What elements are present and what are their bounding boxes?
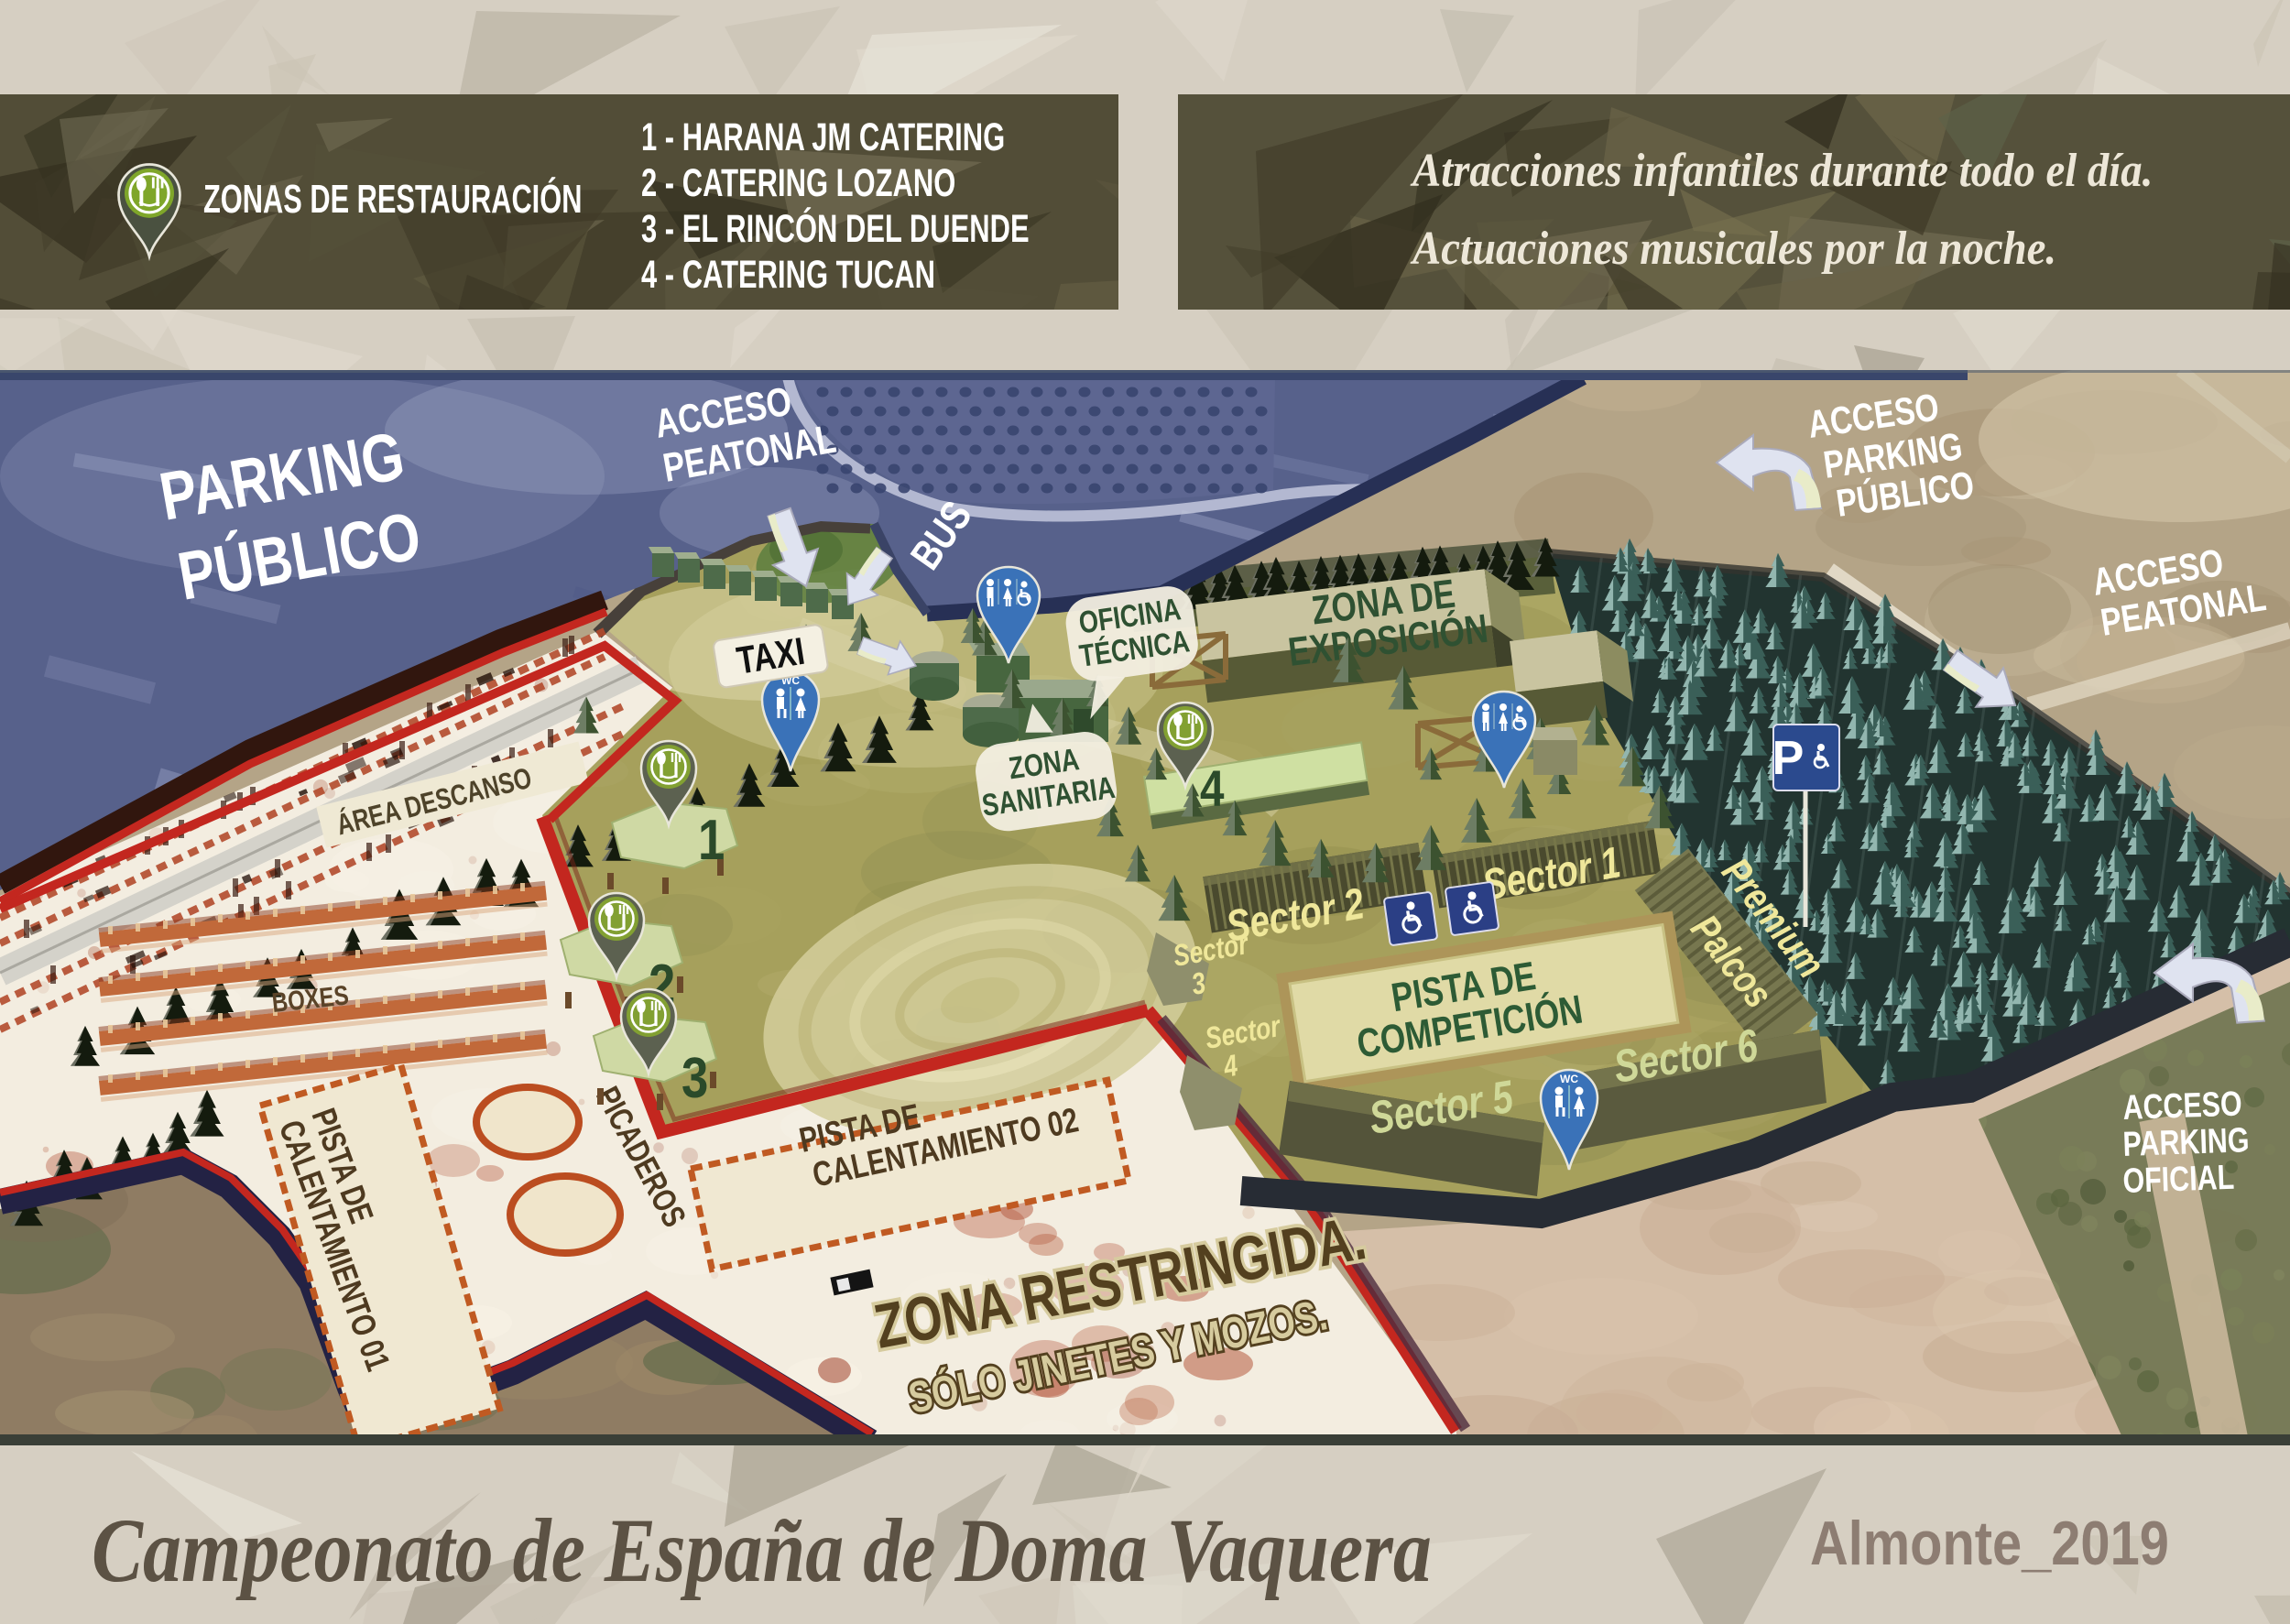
svg-text:4 - CATERING TUCAN: 4 - CATERING TUCAN — [641, 252, 935, 296]
svg-text:P: P — [1772, 732, 1805, 785]
svg-text:Actuaciones musicales por la n: Actuaciones musicales por la noche. — [1410, 222, 2056, 275]
svg-text:Almonte_2019: Almonte_2019 — [1810, 1510, 2169, 1578]
svg-text:4: 4 — [1200, 760, 1225, 817]
svg-text:ZONAS DE RESTAURACIÓN: ZONAS DE RESTAURACIÓN — [203, 175, 582, 222]
svg-text:OFICIAL: OFICIAL — [2122, 1159, 2235, 1201]
svg-text:2 - CATERING LOZANO: 2 - CATERING LOZANO — [641, 160, 955, 204]
svg-text:Atracciones infantiles durante: Atracciones infantiles durante todo el d… — [1410, 144, 2153, 197]
svg-text:1 - HARANA JM CATERING: 1 - HARANA JM CATERING — [641, 114, 1005, 158]
svg-text:Campeonato de España de Doma V: Campeonato de España de Doma Vaquera — [92, 1499, 1432, 1600]
svg-text:ACCESO: ACCESO — [2122, 1084, 2242, 1127]
svg-text:3 - EL RINCÓN DEL DUENDE: 3 - EL RINCÓN DEL DUENDE — [641, 206, 1030, 250]
svg-text:3: 3 — [682, 1047, 708, 1110]
svg-text:1: 1 — [698, 809, 725, 872]
